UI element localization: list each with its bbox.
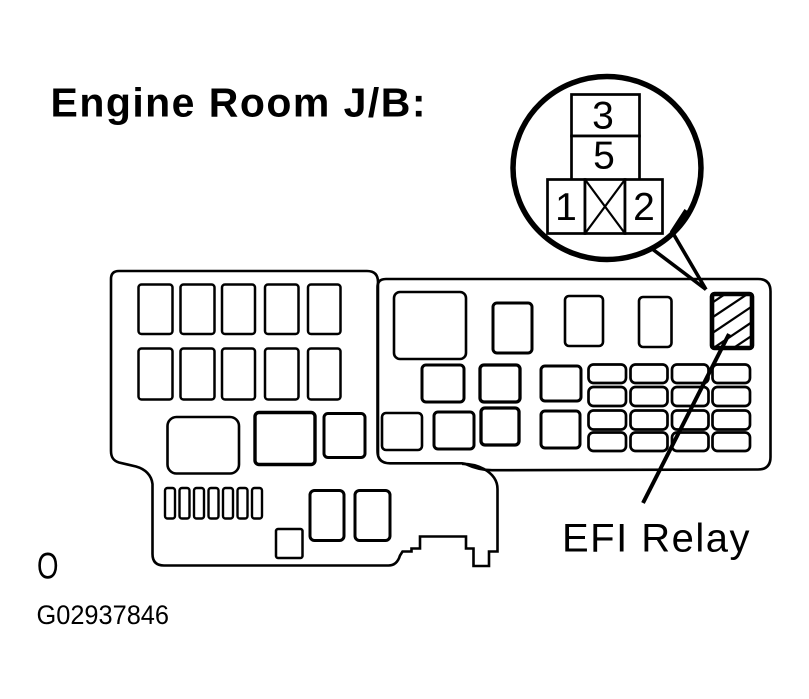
svg-text:Engine Room J/B:: Engine Room J/B: — [51, 80, 426, 126]
svg-text:1: 1 — [555, 186, 577, 229]
svg-text:2: 2 — [633, 186, 655, 229]
svg-text:O: O — [37, 546, 59, 587]
svg-text:EFI Relay: EFI Relay — [562, 517, 750, 561]
svg-text:G02937846: G02937846 — [37, 600, 170, 630]
svg-text:3: 3 — [592, 95, 614, 138]
svg-text:5: 5 — [593, 135, 615, 178]
